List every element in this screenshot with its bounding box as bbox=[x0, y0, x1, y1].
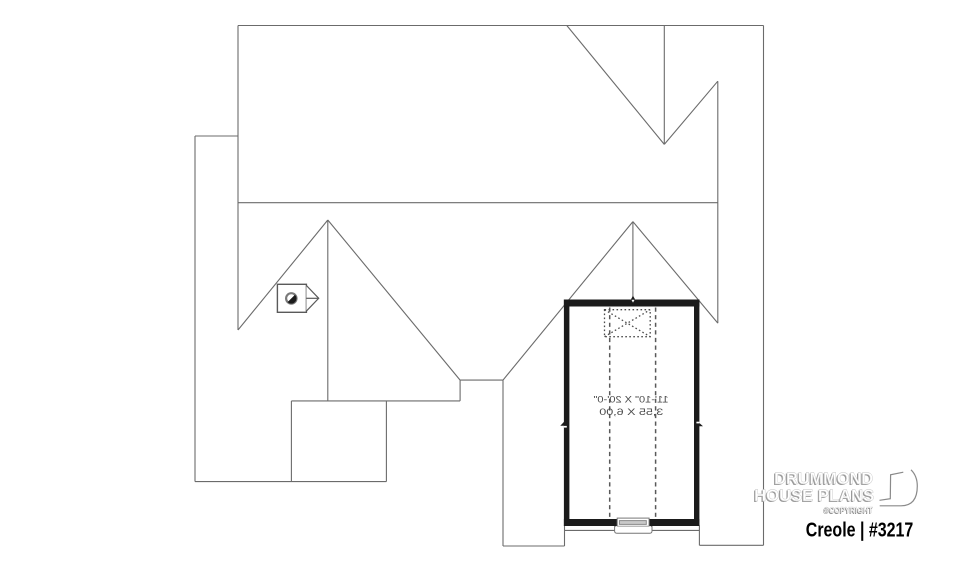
svg-text:HOUSE PLANS: HOUSE PLANS bbox=[754, 486, 874, 505]
svg-text:3,55 X 6,00: 3,55 X 6,00 bbox=[599, 406, 663, 417]
svg-text:11'-10" X 20'-0": 11'-10" X 20'-0" bbox=[594, 393, 669, 404]
svg-text:Creole | #3217: Creole | #3217 bbox=[806, 519, 914, 541]
svg-text:©COPYRIGHT: ©COPYRIGHT bbox=[824, 506, 873, 515]
